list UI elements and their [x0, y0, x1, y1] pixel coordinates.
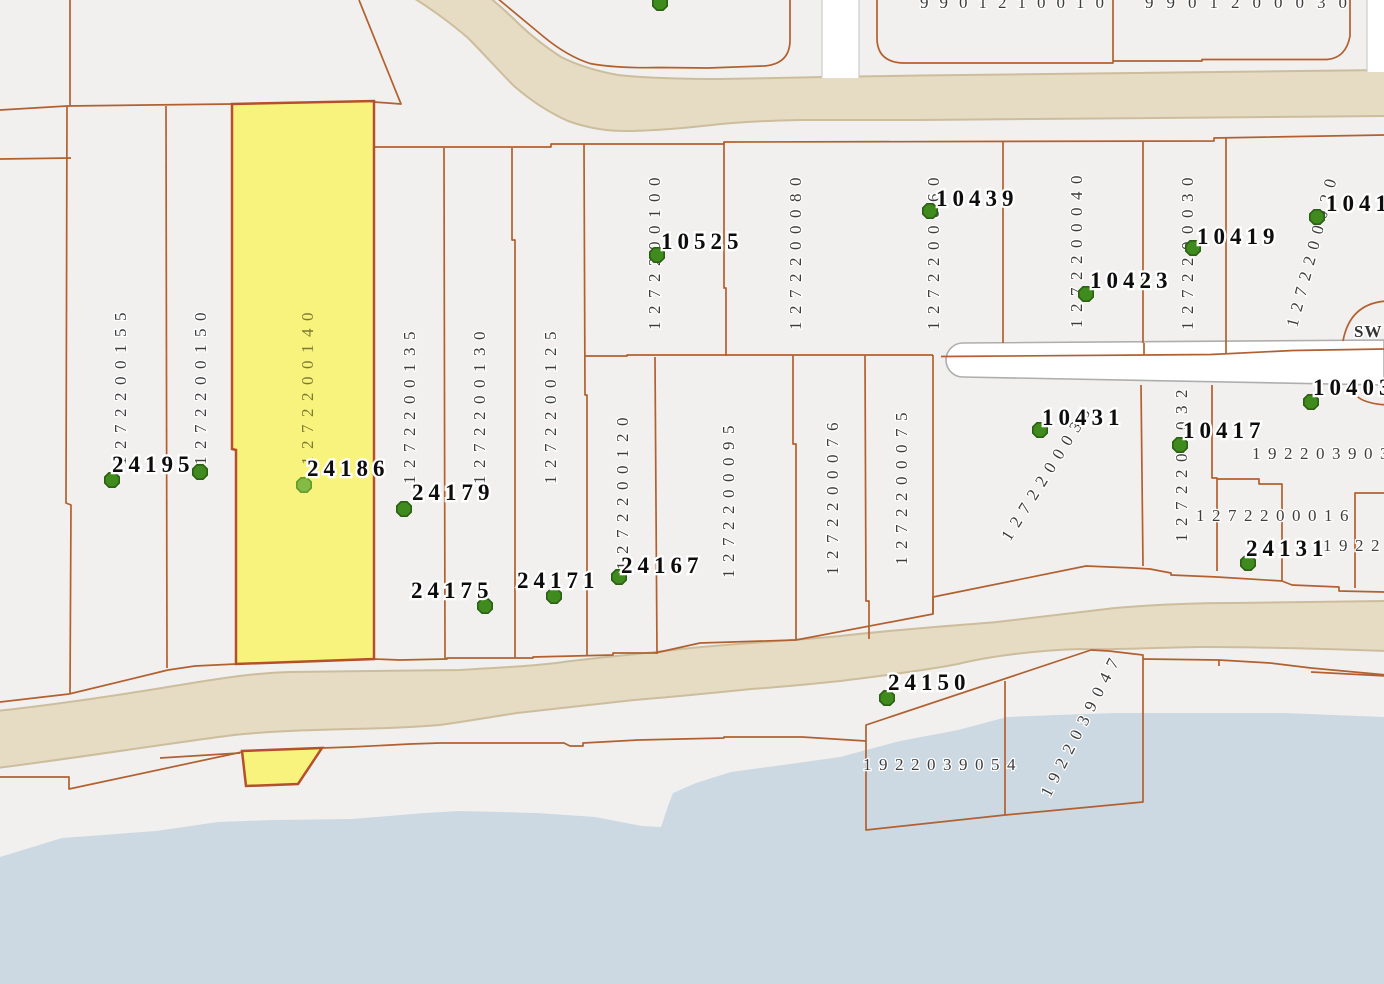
svg-text:24150: 24150	[888, 670, 971, 695]
svg-text:10439: 10439	[936, 186, 1019, 211]
svg-text:10431: 10431	[1042, 405, 1125, 430]
svg-text:1272200120: 1272200120	[613, 410, 632, 570]
svg-text:1272200040: 1272200040	[1067, 168, 1086, 328]
svg-text:1272200155: 1272200155	[111, 305, 130, 465]
svg-text:24131: 24131	[1246, 536, 1329, 561]
svg-text:10403: 10403	[1313, 375, 1384, 400]
svg-text:24167: 24167	[621, 553, 704, 578]
svg-text:1922039030: 1922039030	[1323, 536, 1384, 555]
svg-text:24171: 24171	[517, 568, 600, 593]
svg-text:1272200135: 1272200135	[400, 324, 419, 484]
svg-text:10423: 10423	[1090, 268, 1173, 293]
svg-text:24175: 24175	[411, 578, 494, 603]
svg-text:1272200095: 1272200095	[719, 418, 738, 578]
svg-text:SW: SW	[1354, 322, 1382, 341]
svg-text:1272200140: 1272200140	[298, 305, 317, 465]
svg-text:24195: 24195	[112, 452, 195, 477]
svg-text:1272200016: 1272200016	[1196, 506, 1356, 525]
svg-text:1272200076: 1272200076	[823, 415, 842, 575]
svg-text:10415: 10415	[1326, 191, 1384, 216]
svg-text:1272200032: 1272200032	[1172, 382, 1191, 542]
svg-text:1272200075: 1272200075	[892, 405, 911, 565]
svg-text:24179: 24179	[412, 480, 495, 505]
svg-text:10419: 10419	[1197, 224, 1280, 249]
svg-text:24186: 24186	[307, 456, 390, 481]
svg-text:1272200130: 1272200130	[470, 324, 489, 484]
svg-text:1272200125: 1272200125	[541, 324, 560, 484]
svg-text:1922039054: 1922039054	[863, 755, 1023, 774]
svg-text:9901200030: 9901200030	[1145, 0, 1360, 12]
svg-text:10525: 10525	[661, 229, 744, 254]
svg-text:1272200150: 1272200150	[191, 305, 210, 465]
svg-text:1272200080: 1272200080	[786, 170, 805, 330]
svg-text:10417: 10417	[1183, 418, 1266, 443]
svg-text:9901210010: 9901210010	[920, 0, 1115, 12]
svg-text:1922039031: 1922039031	[1252, 444, 1384, 463]
